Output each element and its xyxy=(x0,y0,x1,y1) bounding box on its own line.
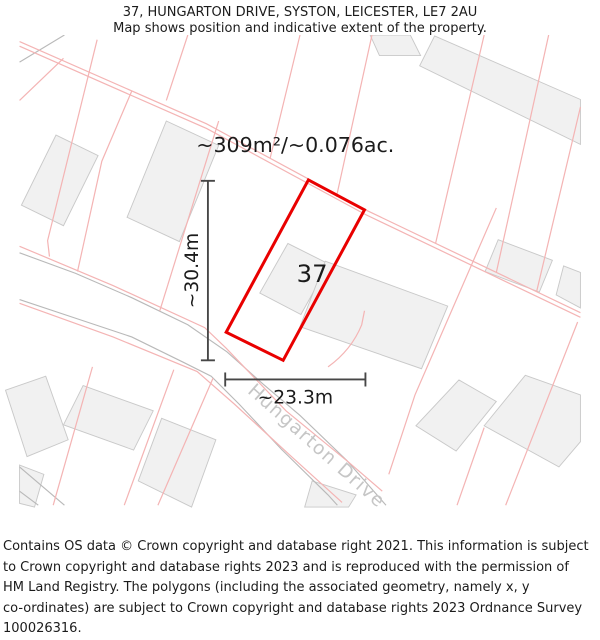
plot-number-label: 37 xyxy=(297,259,328,288)
footer-line: 100026316. xyxy=(0,619,600,640)
map-canvas: Hungarton Drive ~309m²/~0.076ac. 37 ~30.… xyxy=(0,35,600,537)
footer-line: Contains OS data © Crown copyright and d… xyxy=(0,537,600,558)
dimension-horizontal xyxy=(225,372,365,386)
property-address-title: 37, HUNGARTON DRIVE, SYSTON, LEICESTER, … xyxy=(0,0,600,21)
property-map: Hungarton Drive ~309m²/~0.076ac. 37 ~30.… xyxy=(0,35,600,537)
map-title-header: 37, HUNGARTON DRIVE, SYSTON, LEICESTER, … xyxy=(0,0,600,35)
area-label: ~309m²/~0.076ac. xyxy=(196,133,394,157)
footer-line: co-ordinates) are subject to Crown copyr… xyxy=(0,599,600,620)
copyright-footer: Contains OS data © Crown copyright and d… xyxy=(0,537,600,625)
footer-line: HM Land Registry. The polygons (includin… xyxy=(0,578,600,599)
footer-line: to Crown copyright and database rights 2… xyxy=(0,558,600,579)
dim-vertical-label: ~30.4m xyxy=(182,233,203,308)
dim-horizontal-label: ~23.3m xyxy=(258,387,333,408)
